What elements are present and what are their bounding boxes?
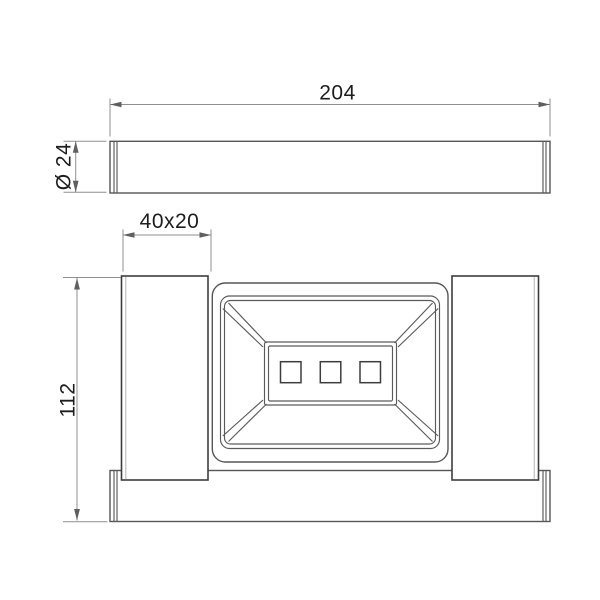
arrowhead-left (110, 102, 122, 108)
front-view: 40x20 112 (57, 210, 551, 522)
drain-hole-center (320, 362, 341, 383)
top-view: 204 Ø 24 (53, 82, 551, 194)
arrowhead-down (74, 509, 80, 521)
dimension-bar-diameter: Ø 24 (53, 141, 107, 192)
drain-hole-left (281, 362, 302, 383)
mounting-post-right (452, 276, 539, 480)
bar-outline (110, 141, 550, 193)
technical-drawing: 204 Ø 24 (0, 0, 600, 600)
arrowhead-right (539, 102, 551, 108)
dimension-label-length: 204 (319, 82, 356, 105)
dimension-label-post-section: 40x20 (140, 210, 200, 233)
dimension-bar-length: 204 (110, 82, 550, 137)
arrowhead-left (123, 232, 135, 238)
dimension-label-diameter: Ø 24 (53, 143, 76, 191)
dimension-label-height: 112 (57, 383, 80, 418)
dimension-post-section: 40x20 (123, 210, 211, 272)
mounting-post-left (122, 276, 209, 480)
arrowhead-right (200, 232, 212, 238)
drain-hole-right (360, 362, 381, 383)
drawing-canvas: 204 Ø 24 (0, 0, 600, 600)
arrowhead-up (74, 278, 80, 290)
